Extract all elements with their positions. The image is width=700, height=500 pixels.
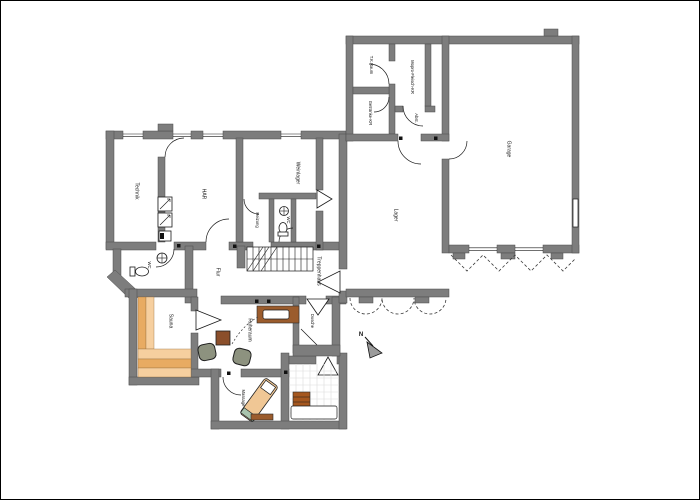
door-arc-massage xyxy=(223,377,241,395)
walls-storage-garage xyxy=(346,29,579,303)
room-label-treppenhaus: Treppenhaus xyxy=(316,256,322,286)
pillar-stub xyxy=(501,253,515,259)
room-label-abstell: Abst. xyxy=(414,113,419,123)
room-label-dusche: Dusche xyxy=(310,314,315,329)
pillar-stub xyxy=(415,297,429,303)
counter-sink xyxy=(263,310,289,319)
room-label-sauna: Sauna xyxy=(168,314,174,329)
table xyxy=(216,331,230,345)
dashed-path xyxy=(232,317,258,344)
pillar-stub xyxy=(551,253,563,259)
room-label-ruheraum: Ruheraum xyxy=(247,318,253,341)
toilet-tank-wc-lower xyxy=(130,267,135,276)
room-label-wc-lower: WC xyxy=(147,262,152,269)
floorplan-drawing: N Technik HAR Weinlager Heizung WC WC Fl… xyxy=(1,1,700,500)
shelf xyxy=(251,414,273,420)
room-label-tkraum: T.K.Raum xyxy=(369,56,374,75)
room-label-heizung: Heizung xyxy=(255,212,260,228)
dashed-canopy xyxy=(350,255,575,314)
room-label-flur: Flur xyxy=(215,268,221,277)
garage-wall-niche xyxy=(573,199,578,227)
door-arc-technik xyxy=(165,138,184,157)
room-label-garage: Garage xyxy=(506,141,512,158)
north-label: N xyxy=(359,332,363,338)
chair xyxy=(197,342,217,361)
toilet-icon-wc-lower xyxy=(136,267,149,276)
door-leaf-tiled-room xyxy=(318,357,338,375)
shower-door-diagonal xyxy=(301,329,317,345)
room-label-technik: Technik xyxy=(134,183,140,200)
north-arrow-head xyxy=(367,342,382,358)
room-label-mopro: Mopro-Fleisch-KR xyxy=(410,60,415,94)
room-label-har: HAR xyxy=(201,189,207,200)
chair xyxy=(232,347,252,367)
pillar-stub xyxy=(453,253,465,259)
north-arrow: N xyxy=(359,332,382,358)
staircase xyxy=(247,247,313,271)
door-arc-garage xyxy=(449,141,467,159)
chimney-stub xyxy=(158,124,173,131)
sauna-benches xyxy=(138,297,191,377)
wood-box xyxy=(293,392,310,408)
pillar-stub xyxy=(359,297,373,303)
door-arc-mopro xyxy=(403,106,423,126)
door-leaf-dusche xyxy=(307,299,329,315)
door-arc-abst-lager xyxy=(398,141,421,164)
room-label-massage: Massage xyxy=(241,390,246,408)
floorplan-canvas: N Technik HAR Weinlager Heizung WC WC Fl… xyxy=(0,0,700,500)
room-label-lager: Lager xyxy=(393,209,399,222)
door-leaf-ruheraum xyxy=(196,310,221,330)
room-label-weinlager: Weinlager xyxy=(295,162,301,185)
room-label-wc-upper: WC xyxy=(286,217,291,224)
walls-main-block xyxy=(106,124,346,250)
door-arc-getraenke xyxy=(374,97,389,112)
door-arc-har-flur xyxy=(206,219,229,242)
bench xyxy=(291,406,337,419)
door-leaf-weinlager xyxy=(317,190,332,208)
room-label-getraenke: Getränke-KR xyxy=(368,101,373,125)
chimney-stub xyxy=(544,29,558,36)
